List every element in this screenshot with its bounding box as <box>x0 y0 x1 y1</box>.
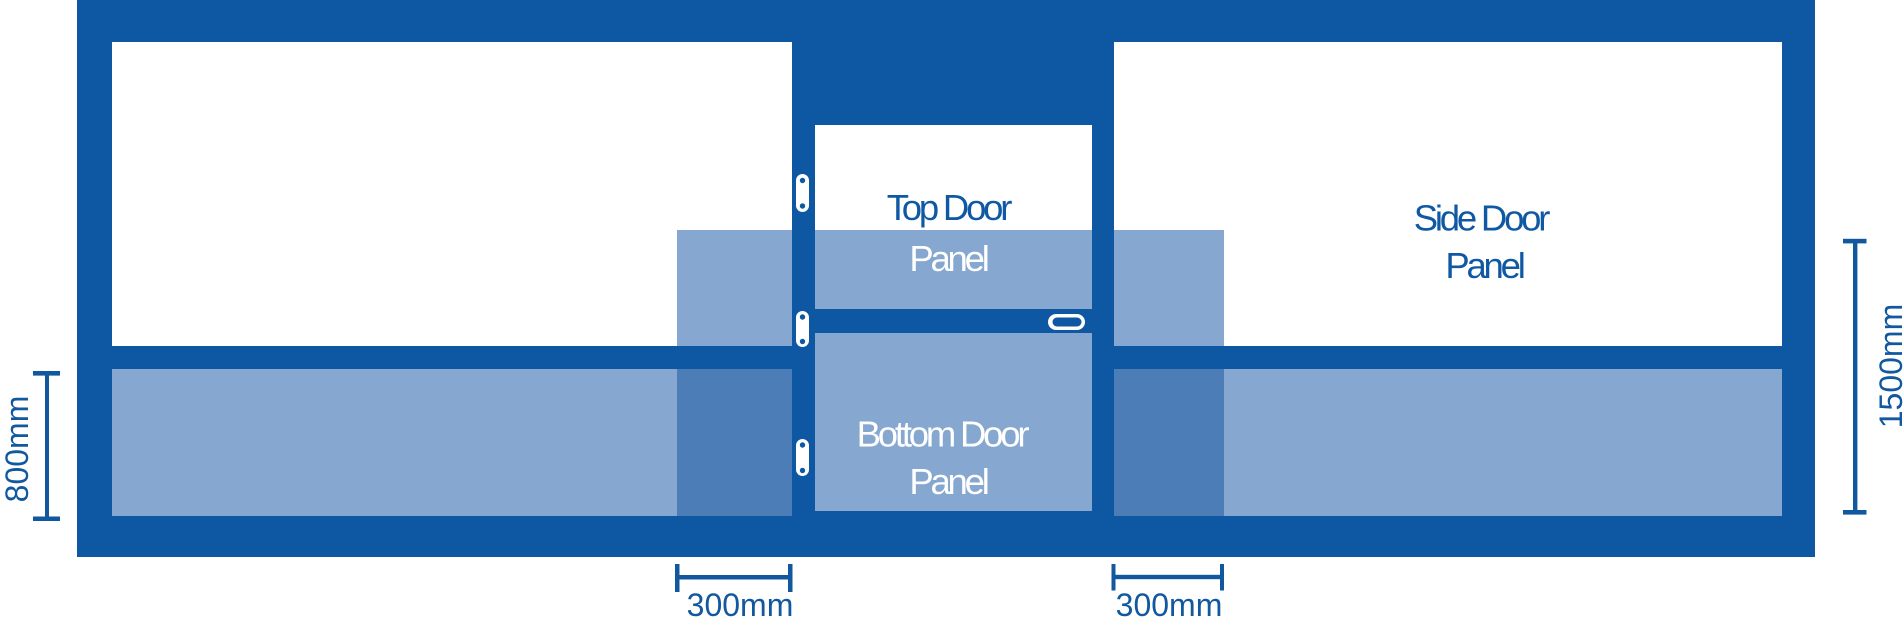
svg-text:800mm: 800mm <box>0 396 35 503</box>
svg-text:Panel: Panel <box>909 461 987 502</box>
svg-text:Panel: Panel <box>1445 245 1523 286</box>
svg-text:Top Door: Top Door <box>887 187 1013 228</box>
svg-text:1500mm: 1500mm <box>1873 304 1904 429</box>
svg-text:Side Door: Side Door <box>1414 198 1551 239</box>
svg-text:Panel: Panel <box>909 238 987 279</box>
svg-text:Bottom Door: Bottom Door <box>857 414 1030 455</box>
svg-text:300mm: 300mm <box>1116 587 1223 618</box>
svg-text:300mm: 300mm <box>687 587 794 618</box>
